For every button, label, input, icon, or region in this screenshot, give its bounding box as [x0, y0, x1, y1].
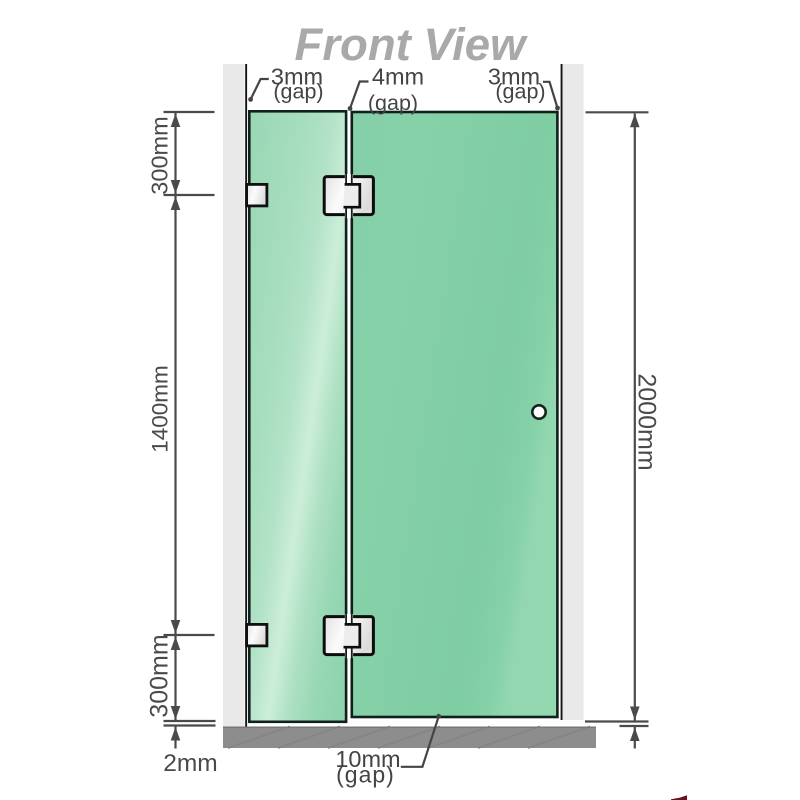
- svg-text:2000mm: 2000mm: [633, 373, 661, 470]
- svg-text:(gap): (gap): [495, 79, 545, 103]
- svg-text:2mm: 2mm: [163, 750, 217, 777]
- svg-text:4mm: 4mm: [372, 64, 424, 90]
- svg-text:300mm: 300mm: [147, 116, 173, 194]
- svg-text:300mm: 300mm: [146, 634, 174, 717]
- svg-text:Front View: Front View: [295, 19, 528, 70]
- svg-text:(gap): (gap): [273, 79, 323, 103]
- svg-text:(gap): (gap): [368, 91, 418, 115]
- svg-text:(gap): (gap): [336, 762, 395, 788]
- svg-text:1400mm: 1400mm: [148, 365, 173, 453]
